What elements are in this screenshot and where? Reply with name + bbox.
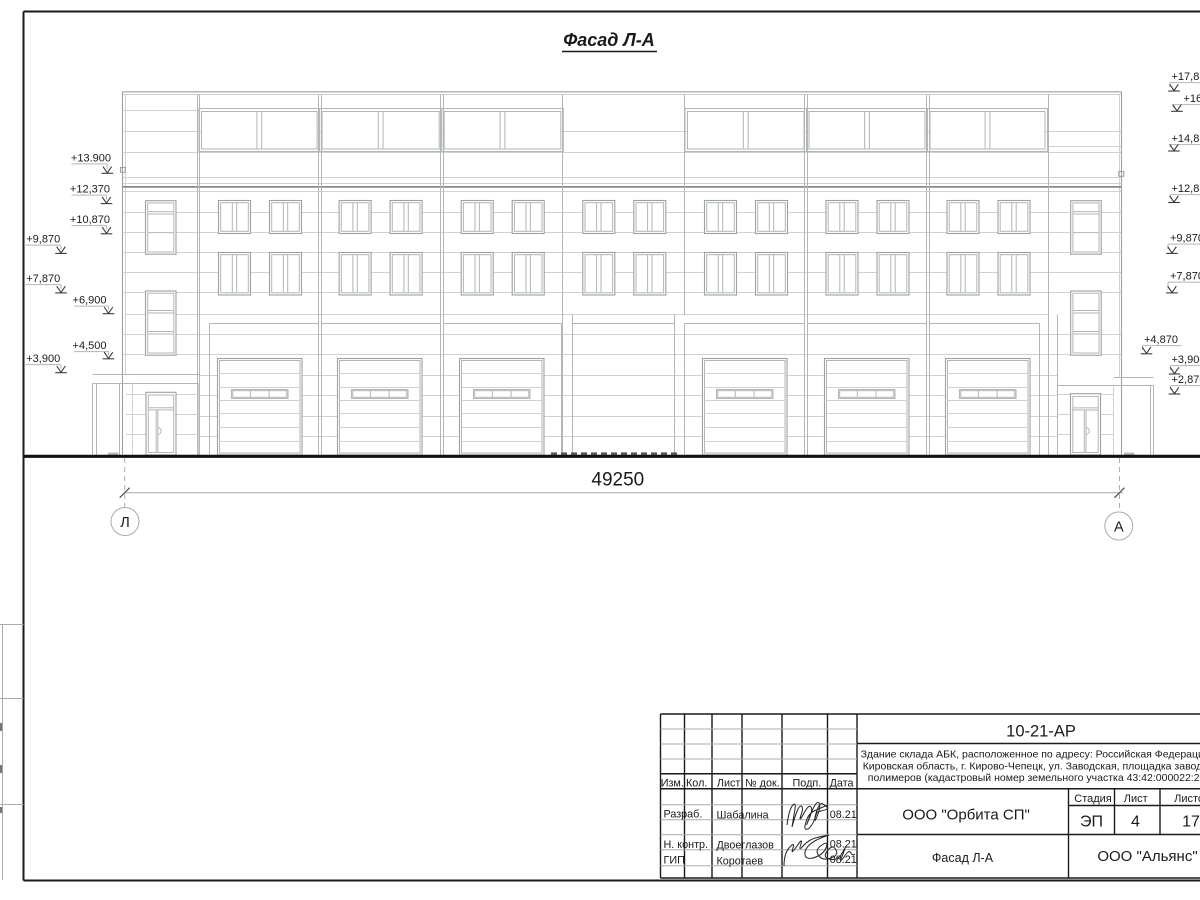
svg-text:Фасад Л-А: Фасад Л-А [932,851,994,865]
svg-text:Подп.: Подп. [793,777,822,789]
svg-text:Стадия: Стадия [1074,793,1112,805]
svg-text:17: 17 [1182,814,1200,831]
svg-text:+3,900: +3,900 [1172,354,1200,366]
svg-text:ООО "Альянс": ООО "Альянс" [1097,848,1197,865]
svg-text:Фасад Л-А: Фасад Л-А [563,30,655,50]
svg-text:Лист: Лист [717,777,741,789]
svg-text:№ док.: № док. [745,777,780,789]
svg-text:4: 4 [1131,814,1140,831]
svg-text:+14,870: +14,870 [1172,133,1200,145]
svg-text:Двоеглазов: Двоеглазов [717,840,775,852]
svg-text:+2,870: +2,870 [1172,374,1200,386]
svg-text:+9,870: +9,870 [1170,233,1200,245]
svg-text:+16,870: +16,870 [1184,93,1200,105]
svg-text:А: А [1114,520,1124,536]
svg-text:+9,870: +9,870 [26,234,60,246]
svg-text:Кол.: Кол. [686,777,707,789]
svg-text:+7,870: +7,870 [1170,271,1200,283]
svg-text:+6,900: +6,900 [73,295,107,307]
svg-text:+4,500: +4,500 [73,340,107,352]
svg-text:+12,370: +12,370 [70,184,110,196]
svg-text:49250: 49250 [591,470,644,491]
svg-text:Дата: Дата [830,777,854,789]
svg-text:10-21-АР: 10-21-АР [1006,723,1076,741]
svg-text:08.21: 08.21 [830,809,857,821]
svg-text:Здание склада АБК, расположенн: Здание склада АБК, расположенное по адре… [861,749,1200,761]
svg-text:Изм.: Изм. [661,777,684,789]
svg-text:ЭП: ЭП [1080,814,1103,831]
svg-text:+12,870: +12,870 [1172,183,1200,195]
svg-text:ООО "Орбита СП": ООО "Орбита СП" [902,806,1030,823]
svg-text:Листов: Листов [1174,793,1200,805]
svg-text:Шабалина: Шабалина [717,809,769,821]
svg-text:+13.900: +13.900 [71,152,111,164]
svg-text:Разраб.: Разраб. [664,809,703,821]
svg-text:08.21: 08.21 [830,839,857,851]
svg-text:08.21: 08.21 [830,854,857,866]
svg-text:+17,870: +17,870 [1172,71,1200,83]
svg-text:Коротаев: Коротаев [717,855,764,867]
svg-text:Н. контр.: Н. контр. [664,839,709,851]
svg-text:+7,870: +7,870 [26,273,60,285]
svg-text:Кировская область, г. Кирово-Ч: Кировская область, г. Кирово-Чепецк, ул.… [863,761,1200,773]
svg-text:Л: Л [120,515,130,531]
svg-text:+4,870: +4,870 [1144,334,1178,346]
svg-text:+3,900: +3,900 [26,353,60,365]
svg-text:полимеров (кадастровый номер з: полимеров (кадастровый номер земельного … [868,772,1200,784]
svg-text:ГИП: ГИП [664,855,685,867]
svg-text:+10,870: +10,870 [70,214,110,226]
svg-text:Лист: Лист [1124,793,1148,805]
